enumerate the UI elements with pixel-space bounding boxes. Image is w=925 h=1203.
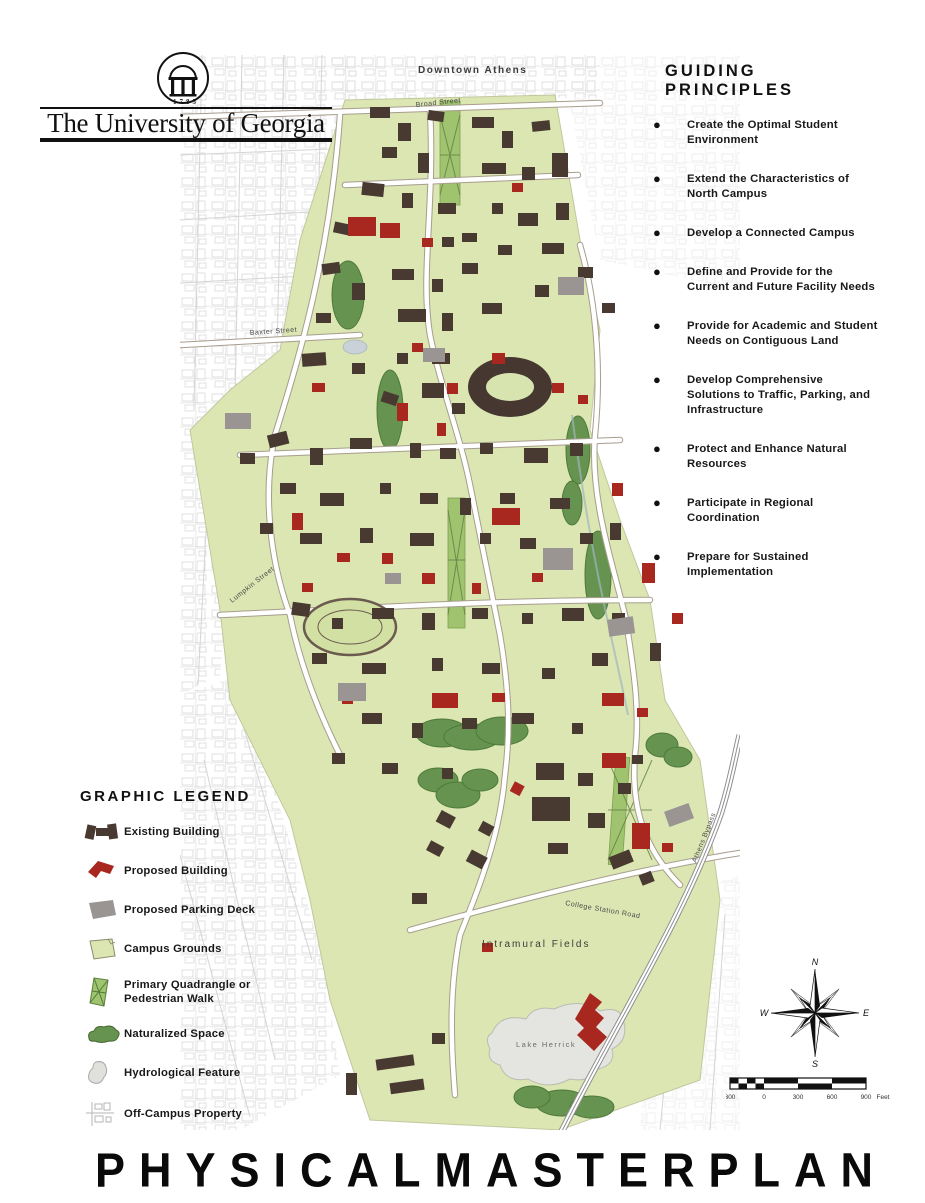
principle-item: ●Extend the Characteristics of North Cam… [653, 172, 878, 202]
scale-label-1: 0 [762, 1094, 766, 1101]
legend-item-campus-grounds: Campus Grounds [80, 936, 295, 962]
compass-n-label: N [812, 957, 819, 967]
stadium [468, 357, 552, 417]
legend-item-existing-building: Existing Building [80, 819, 295, 845]
existing-building-icon [80, 819, 124, 845]
compass-rose: N E S W [756, 956, 874, 1070]
scale-label-3: 600 [827, 1094, 838, 1101]
compass-w-label: W [760, 1008, 770, 1018]
campus-grounds-icon [80, 936, 124, 962]
principle-item: ●Provide for Academic and Student Needs … [653, 319, 878, 349]
hydrological-feature-icon [80, 1059, 124, 1087]
scale-label-2: 300 [793, 1094, 804, 1101]
bullet-icon: ● [653, 550, 665, 580]
poster-page: Downtown Athens Broad Street Baxter Stre… [0, 0, 925, 1203]
compass-s-label: S [812, 1059, 818, 1069]
legend-item-off-campus-property: Off-Campus Property [80, 1100, 295, 1128]
bullet-icon: ● [653, 373, 665, 418]
title-word: PLAN [709, 1142, 888, 1198]
university-logo: 1785 The University of Georgia [40, 50, 332, 142]
principle-item: ●Participate in Regional Coordination [653, 496, 878, 526]
bullet-icon: ● [653, 442, 665, 472]
legend-item-proposed-building: Proposed Building [80, 858, 295, 884]
title-word: MASTER [435, 1142, 709, 1198]
legend-item-naturalized-space: Naturalized Space [80, 1022, 295, 1046]
legend-item-primary-quadrangle: Primary Quadrangle or Pedestrian Walk [80, 975, 295, 1009]
bullet-icon: ● [653, 118, 665, 148]
graphic-legend-heading: GRAPHIC LEGEND [80, 788, 295, 805]
label-downtown-athens: Downtown Athens [418, 65, 527, 76]
off-campus-property-icon [80, 1100, 124, 1128]
title-word: PHYSICAL [95, 1142, 435, 1198]
track-oval [304, 599, 396, 655]
bullet-icon: ● [653, 265, 665, 295]
compass-rose-icon: N E S W [760, 957, 870, 1069]
principle-item: ●Develop Comprehensive Solutions to Traf… [653, 373, 878, 418]
bullet-icon: ● [653, 226, 665, 241]
naturalized-space-icon [80, 1022, 124, 1046]
proposed-parking-deck-icon [80, 897, 124, 923]
guiding-principles-heading: GUIDING PRINCIPLES [665, 62, 878, 100]
proposed-building-icon [80, 858, 124, 884]
legend-item-hydrological-feature: Hydrological Feature [80, 1059, 295, 1087]
scale-label-4: 900 [861, 1094, 872, 1101]
logo-year: 1785 [40, 98, 332, 106]
guiding-principles: GUIDING PRINCIPLES ●Create the Optimal S… [653, 62, 878, 604]
principle-item: ●Prepare for Sustained Implementation [653, 550, 878, 580]
label-intramural-fields: Intramural Fields [482, 939, 590, 950]
scale-label-0: 300 [726, 1094, 736, 1101]
bullet-icon: ● [653, 319, 665, 349]
institution-name: The University of Georgia [40, 108, 332, 139]
graphic-legend: GRAPHIC LEGEND Existing Building Propose… [80, 788, 295, 1141]
principle-item: ●Develop a Connected Campus [653, 226, 878, 241]
bullet-icon: ● [653, 172, 665, 202]
principle-item: ●Protect and Enhance Natural Resources [653, 442, 878, 472]
bullet-icon: ● [653, 496, 665, 526]
scale-unit: Feet [876, 1094, 889, 1101]
scale-bar-icon [730, 1078, 866, 1089]
principle-item: ●Create the Optimal Student Environment [653, 118, 878, 148]
scale-bar: 300 0 300 600 900 Feet [726, 1074, 896, 1106]
legend-item-proposed-parking-deck: Proposed Parking Deck [80, 897, 295, 923]
compass-e-label: E [863, 1008, 870, 1018]
label-lake-herrick: Lake Herrick [516, 1040, 576, 1049]
primary-quadrangle-icon [80, 975, 124, 1009]
logo-thick-rule [40, 138, 332, 142]
page-title: PHYSICAL MASTER PLAN [95, 1142, 880, 1194]
pond [343, 340, 367, 354]
principle-item: ●Define and Provide for the Current and … [653, 265, 878, 295]
